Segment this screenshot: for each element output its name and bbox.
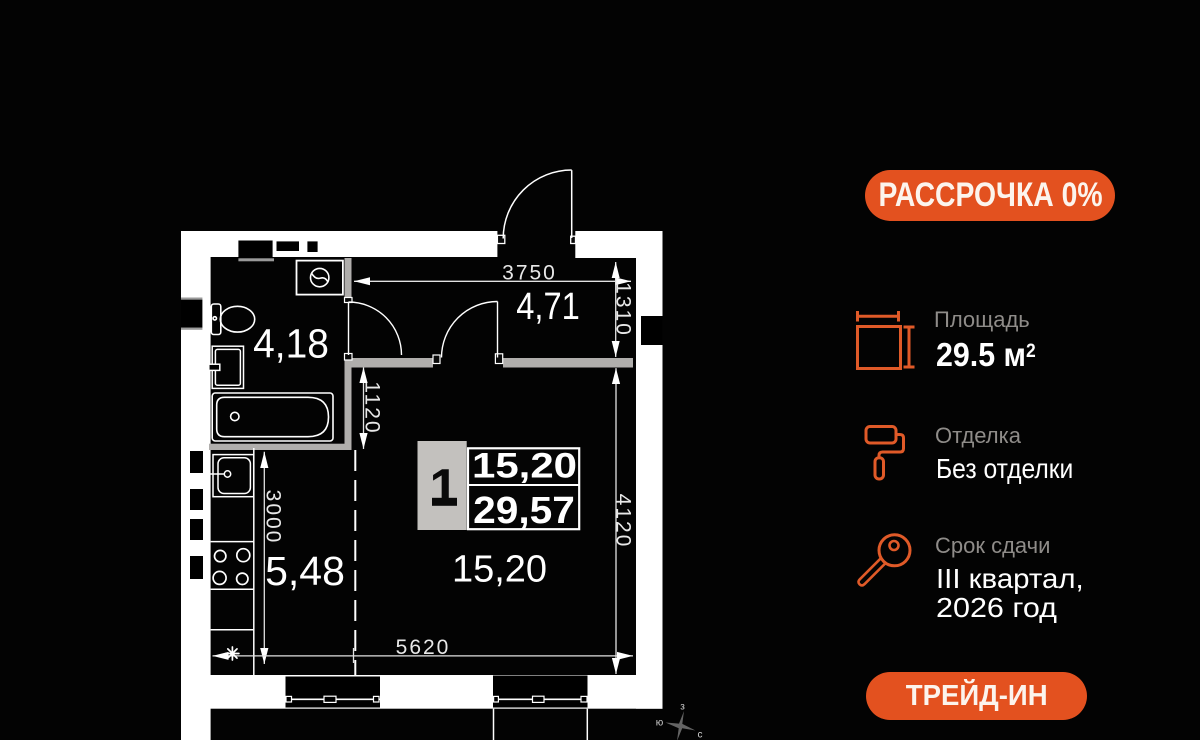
svg-text:1120: 1120 bbox=[361, 381, 384, 434]
svg-text:ю: ю bbox=[656, 718, 664, 729]
svg-text:3750: 3750 bbox=[502, 262, 557, 285]
svg-text:4,18: 4,18 bbox=[253, 322, 329, 367]
svg-text:1310: 1310 bbox=[612, 282, 635, 337]
svg-text:5620: 5620 bbox=[396, 636, 451, 659]
svg-text:4,71: 4,71 bbox=[516, 285, 580, 328]
svg-text:5,48: 5,48 bbox=[265, 548, 345, 594]
svg-text:29,57: 29,57 bbox=[473, 489, 575, 531]
svg-text:15,20: 15,20 bbox=[472, 447, 577, 486]
svg-text:4120: 4120 bbox=[612, 494, 635, 549]
svg-text:15,20: 15,20 bbox=[452, 549, 547, 591]
svg-text:с: с bbox=[698, 730, 703, 740]
svg-text:3000: 3000 bbox=[262, 490, 285, 545]
svg-text:з: з bbox=[680, 702, 685, 713]
svg-text:1: 1 bbox=[430, 459, 459, 517]
